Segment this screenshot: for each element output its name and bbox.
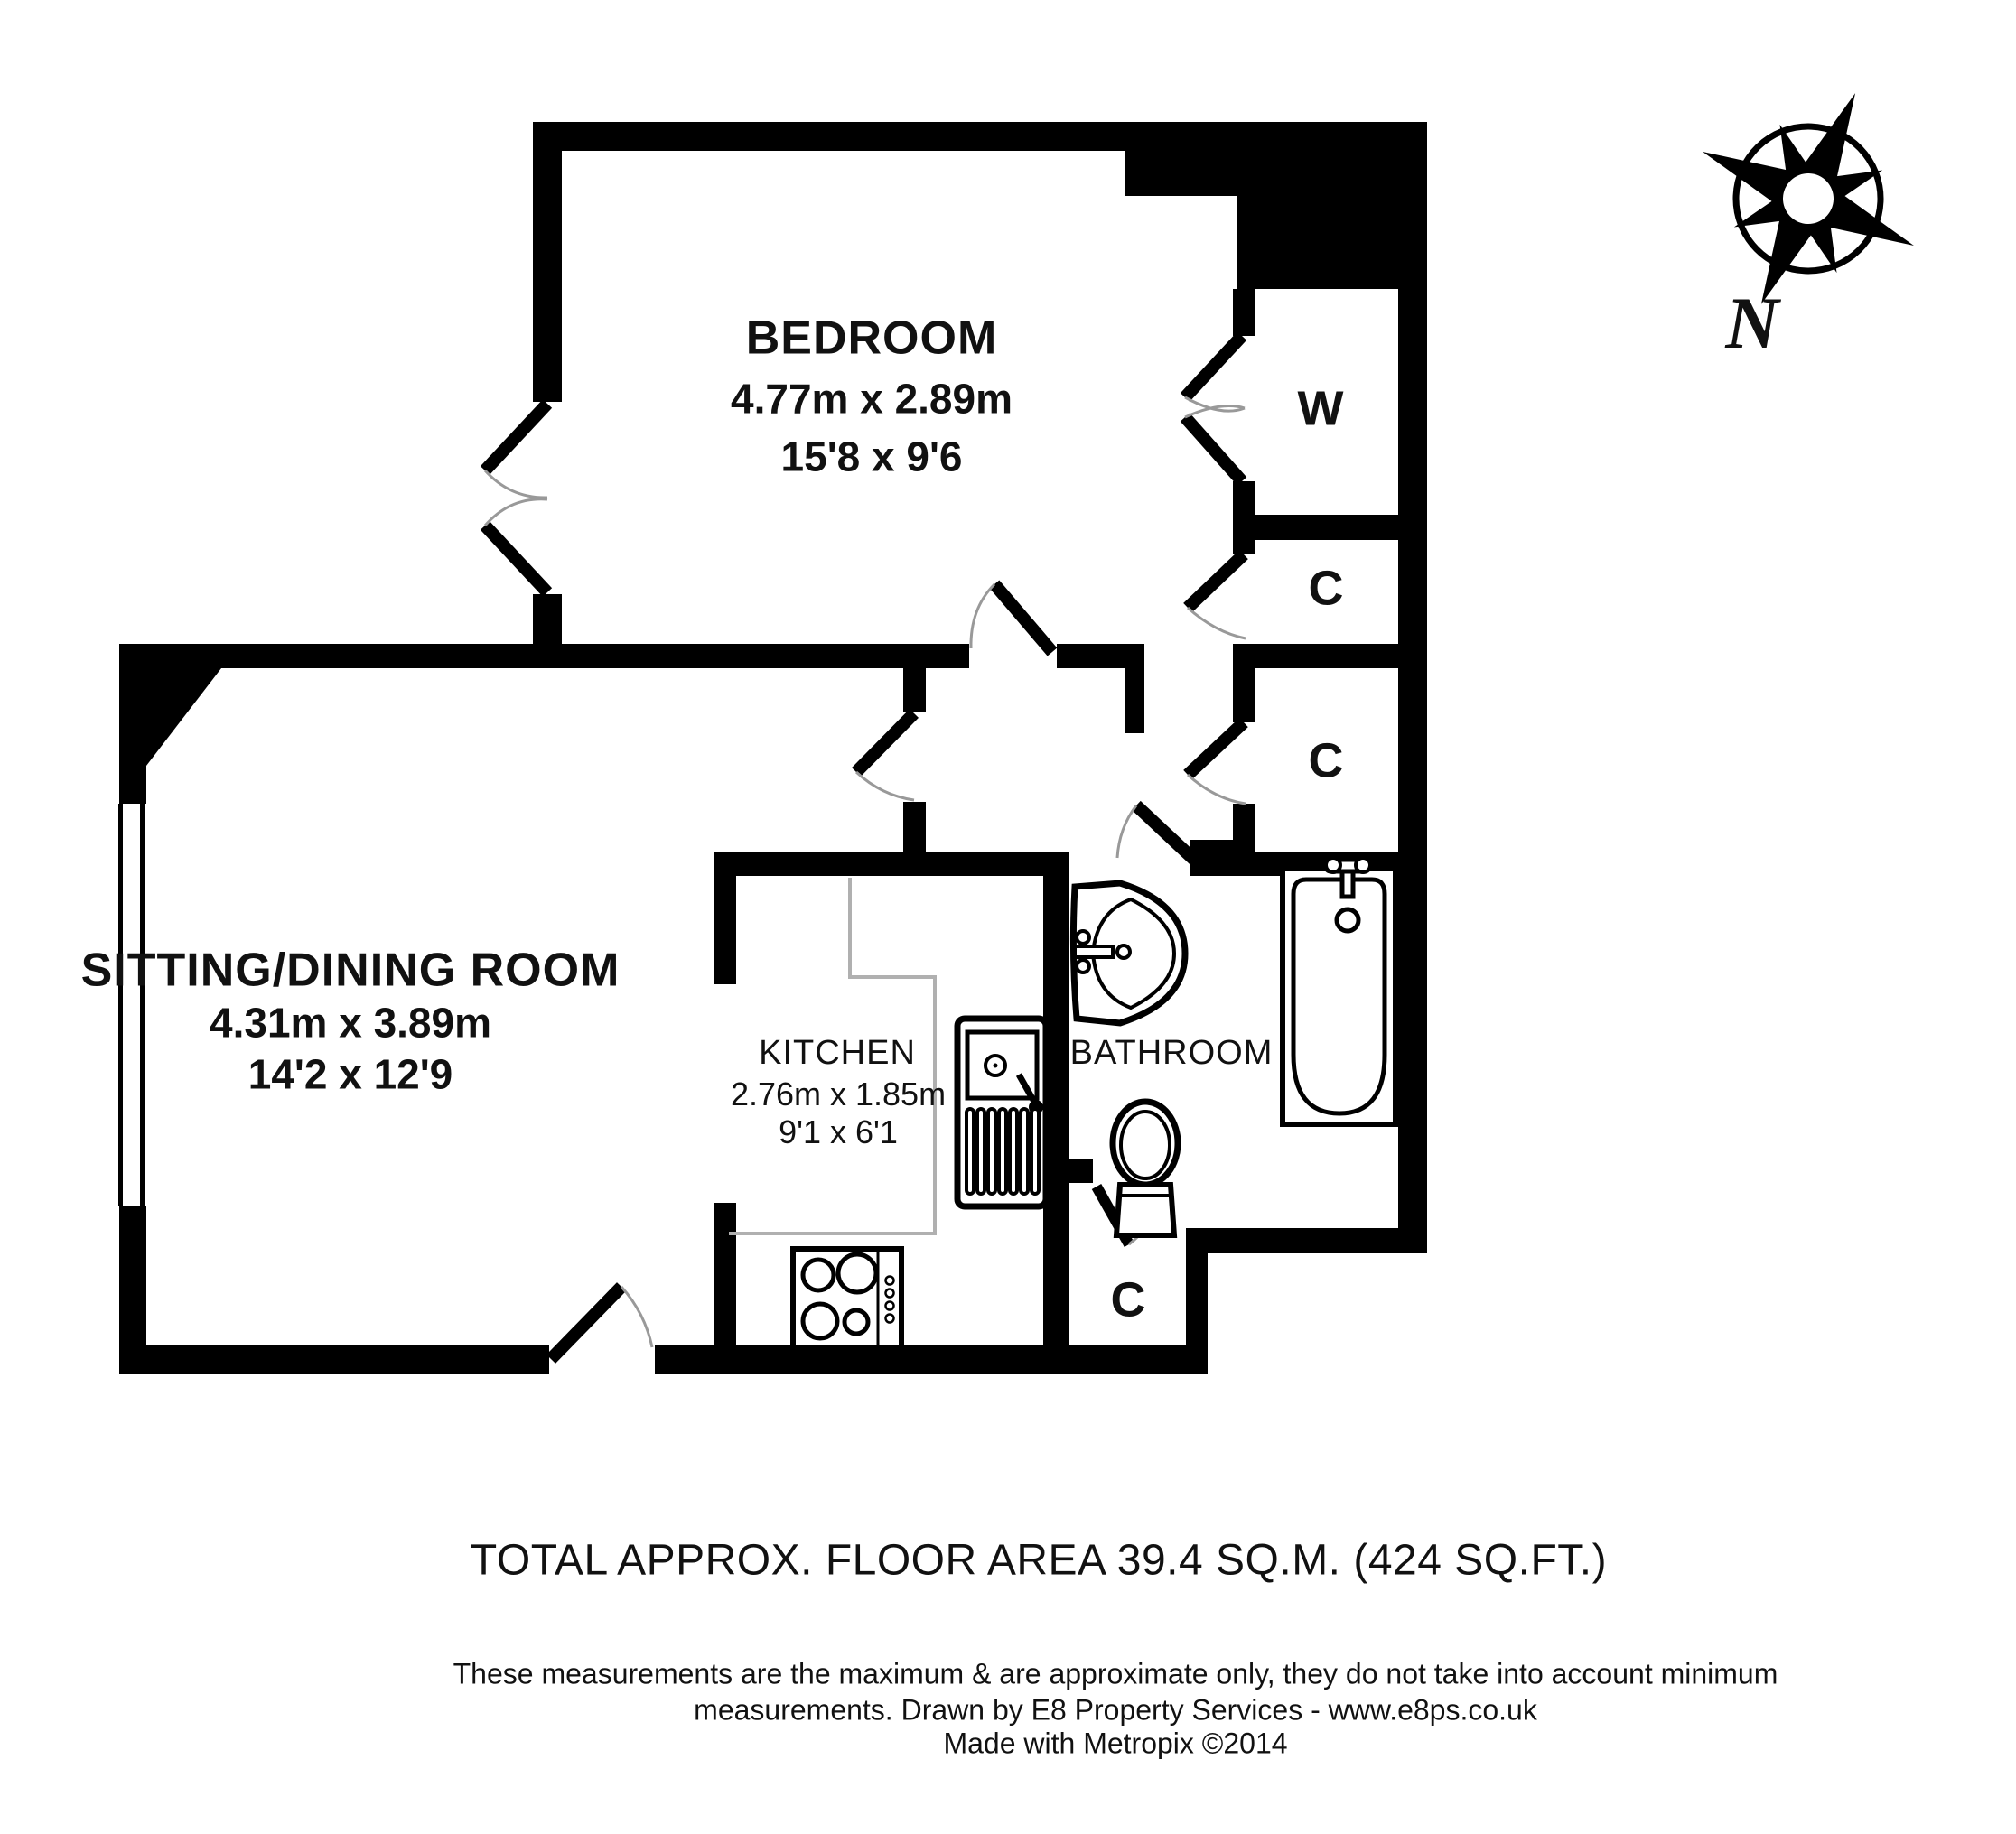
wall — [1233, 515, 1398, 540]
floorplan-page: BEDROOM 4.77m x 2.89m 15'8 x 9'6 SITTING… — [0, 0, 2016, 1834]
wall — [119, 1206, 146, 1345]
bathtub-icon — [1283, 858, 1395, 1124]
wall — [1398, 122, 1427, 1253]
kitchen-sink-icon — [957, 1019, 1046, 1206]
wardrobe-letter: W — [1298, 382, 1344, 435]
toilet-icon — [1113, 1102, 1178, 1235]
wall — [1125, 122, 1242, 196]
sitting-room-dim-imperial: 14'2 x 12'9 — [248, 1052, 453, 1098]
wall — [533, 594, 562, 646]
wall — [119, 766, 146, 804]
closet-door-upper — [1188, 554, 1246, 638]
bedroom-dim-imperial: 15'8 x 9'6 — [781, 434, 963, 480]
compass-icon — [1656, 46, 1961, 351]
wall — [1057, 644, 1144, 668]
wall — [903, 668, 926, 712]
wall — [714, 1203, 736, 1374]
sitting-room-dim-metric: 4.31m x 3.89m — [210, 1001, 491, 1047]
wall — [1233, 644, 1398, 668]
wall — [655, 1345, 1208, 1374]
bathroom-closet-letter: C — [1111, 1273, 1146, 1327]
wall — [1069, 1159, 1093, 1183]
sitting-hall-door — [856, 713, 914, 800]
disclaimer-line2: measurements. Drawn by E8 Property Servi… — [694, 1694, 1537, 1726]
wall — [714, 852, 1069, 876]
sitting-room-door — [551, 1287, 652, 1359]
wall — [1186, 1228, 1427, 1253]
bathroom-door — [1117, 805, 1194, 860]
credit-line: Made with Metropix ©2014 — [943, 1727, 1287, 1759]
drainer-bars — [966, 1109, 1039, 1194]
hall-closet-upper-letter: C — [1309, 562, 1344, 615]
bathroom-label: BATHROOM — [1070, 1035, 1274, 1073]
wall — [1190, 840, 1240, 876]
wall — [119, 644, 969, 668]
kitchen-dim-imperial: 9'1 x 6'1 — [779, 1114, 898, 1150]
wall — [903, 802, 926, 876]
walls — [119, 122, 1427, 1374]
wall — [533, 122, 1138, 151]
wall — [1233, 289, 1255, 336]
disclaimer-line1: These measurements are the maximum & are… — [453, 1658, 1778, 1690]
bedroom-label: BEDROOM — [746, 312, 998, 364]
wall — [119, 1345, 549, 1374]
hob-icon — [793, 1249, 901, 1348]
kitchen-label: KITCHEN — [759, 1035, 916, 1073]
wall — [1186, 1228, 1208, 1374]
total-area-text: TOTAL APPROX. FLOOR AREA 39.4 SQ.M. (424… — [471, 1538, 1607, 1586]
wall — [1125, 668, 1144, 733]
wardrobe-doors — [1185, 336, 1245, 481]
french-doors-bedroom — [485, 404, 547, 592]
wall-chamfer — [119, 668, 221, 766]
window-sitting-room — [118, 804, 145, 1206]
kitchen-dim-metric: 2.76m x 1.85m — [731, 1076, 946, 1113]
closet-door-lower — [1188, 722, 1246, 804]
sitting-room-label: SITTING/DINING ROOM — [81, 945, 621, 996]
wall — [533, 122, 562, 402]
hall-closet-lower-letter: C — [1309, 734, 1344, 787]
wall — [1233, 668, 1255, 722]
bedroom-door — [971, 584, 1052, 652]
bathroom-sink-icon — [1073, 883, 1185, 1023]
bedroom-dim-metric: 4.77m x 2.89m — [731, 377, 1013, 423]
compass-north-label: N — [1725, 283, 1778, 364]
